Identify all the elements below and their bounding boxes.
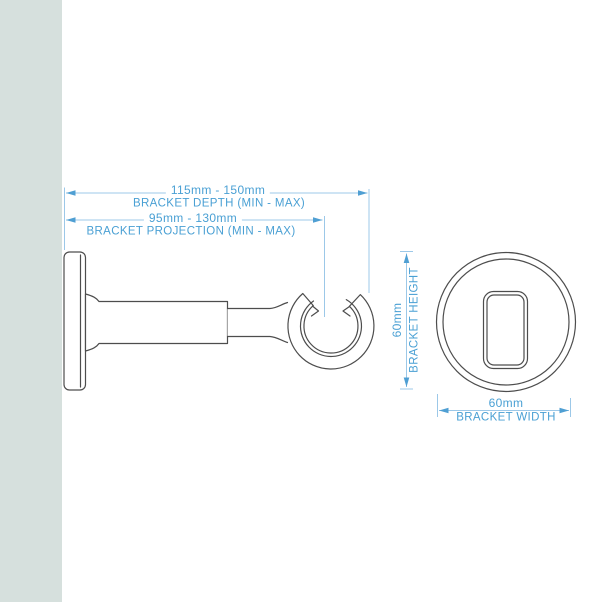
width-arrow-right <box>560 408 570 414</box>
projection-arrow-right <box>313 217 323 223</box>
width-dimension-value: 60mm <box>489 397 524 409</box>
bracket-stem-fill <box>228 309 295 337</box>
depth-dimension-label: BRACKET DEPTH (MIN - MAX) <box>133 198 305 210</box>
width-dimension-label: BRACKET WIDTH <box>456 412 556 424</box>
center-boss-outer <box>484 292 528 369</box>
diagram-canvas <box>0 0 602 602</box>
height-dimension-value: 60mm <box>391 303 403 338</box>
cup-left-notch <box>312 306 319 316</box>
bracket-dimension-diagram: 115mm - 150mm BRACKET DEPTH (MIN - MAX) … <box>0 0 602 602</box>
bracket-arm <box>86 294 228 351</box>
bracket-side-view <box>64 252 374 390</box>
bracket-front-view <box>437 253 576 392</box>
cup-right-notch <box>343 307 350 317</box>
projection-dimension-value: 95mm - 130mm <box>144 211 242 225</box>
depth-dimension-value: 115mm - 150mm <box>166 183 270 197</box>
width-arrow-left <box>439 408 449 414</box>
height-arrow-bottom <box>404 378 410 388</box>
height-arrow-top <box>404 254 410 264</box>
projection-dimension-label: BRACKET PROJECTION (MIN - MAX) <box>87 226 296 238</box>
depth-arrow-right <box>358 190 368 196</box>
projection-arrow-left <box>66 217 76 223</box>
wall-plate <box>64 252 86 390</box>
height-dimension-label: BRACKET HEIGHT <box>409 267 421 373</box>
depth-arrow-left <box>66 190 76 196</box>
